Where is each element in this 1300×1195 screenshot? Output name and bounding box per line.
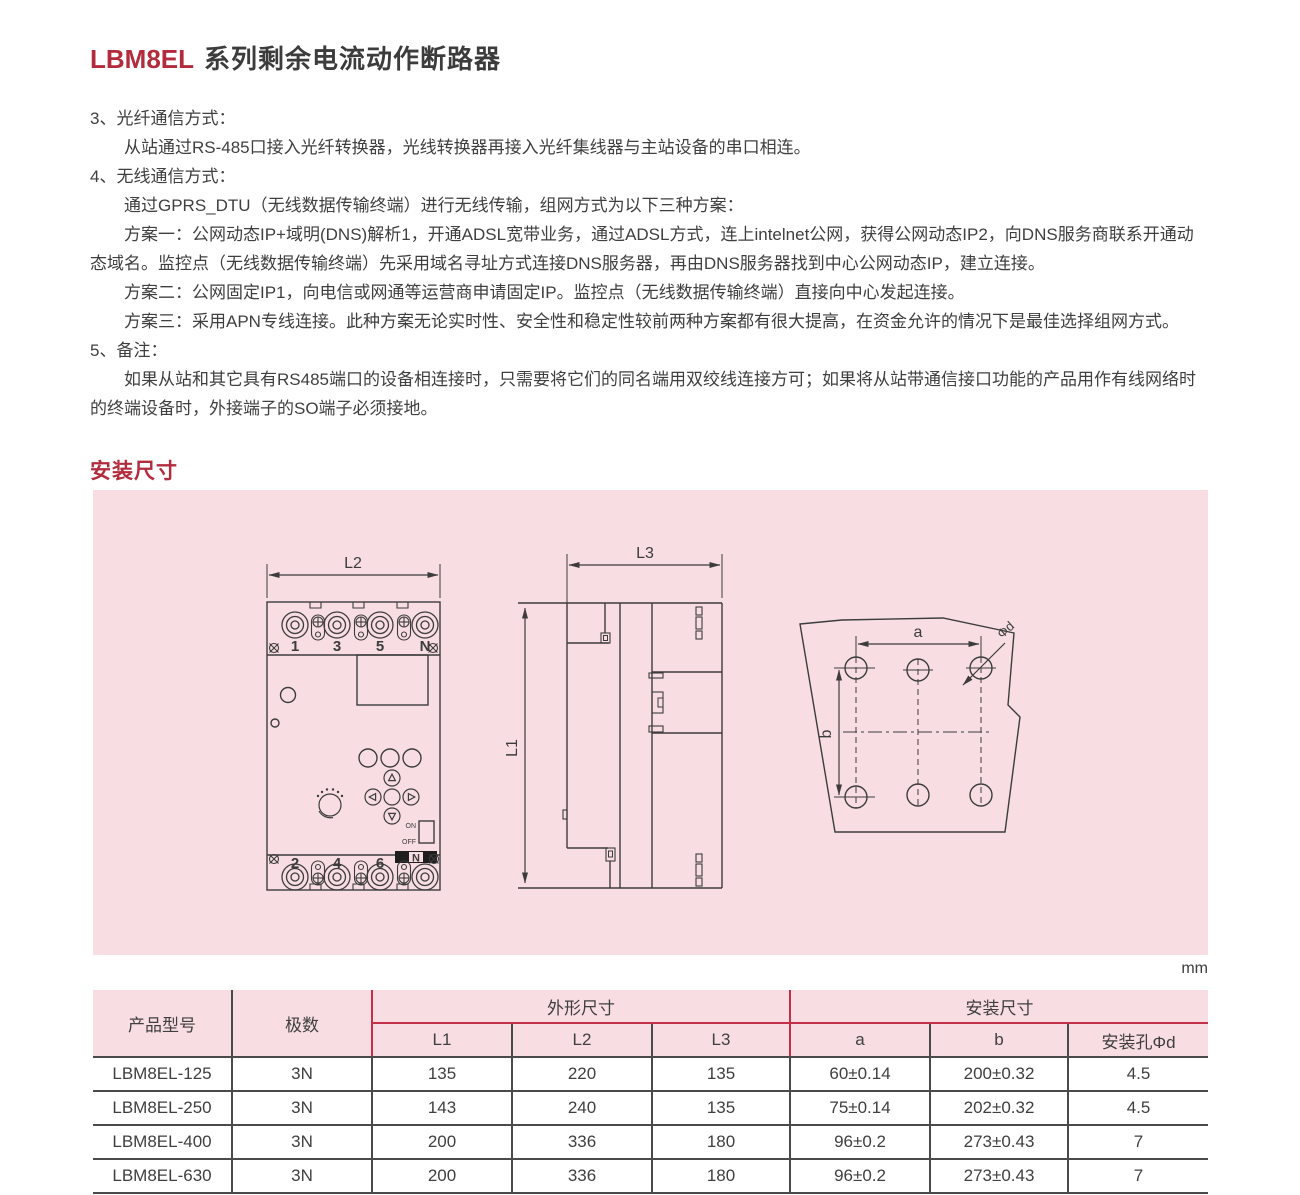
cell-model: LBM8EL-125 — [93, 1057, 232, 1091]
cell-poles: 3N — [232, 1057, 372, 1091]
side-view-height-label: L1 — [504, 739, 521, 757]
note-line-2: 从站通过RS-485口接入光纤转换器，光线转换器再接入光纤集线器与主站设备的串口… — [90, 133, 1208, 162]
top-terminals — [282, 612, 438, 638]
mounting-hole-drawing: a b Φd — [800, 618, 1020, 832]
cell-poles: 3N — [232, 1125, 372, 1159]
rotary-selector-knob — [317, 788, 343, 817]
cell-l1: 200 — [372, 1125, 512, 1159]
note-line-4: 通过GPRS_DTU（无线数据传输终端）进行无线传输，组网方式为以下三种方案： — [90, 191, 1208, 220]
column-header-product-model: 产品型号 — [93, 990, 232, 1057]
navigation-buttons — [365, 770, 419, 824]
dimensions-table: 产品型号 极数 外形尺寸 安装尺寸 L1 L2 L3 a b 安装孔Φd LBM… — [93, 990, 1208, 1194]
cell-a: 60±0.14 — [790, 1057, 930, 1091]
cell-a: 96±0.2 — [790, 1125, 930, 1159]
communication-notes: 3、光纤通信方式： 从站通过RS-485口接入光纤转换器，光线转换器再接入光纤集… — [90, 104, 1208, 423]
cell-l2: 220 — [512, 1057, 652, 1091]
front-view-drawing: L2 — [267, 555, 440, 890]
side-view-drawing: L3 L1 — [504, 545, 722, 888]
cell-a: 96±0.2 — [790, 1159, 930, 1193]
section-heading: 安装尺寸 — [90, 455, 178, 485]
cell-d: 4.5 — [1068, 1091, 1208, 1125]
catalog-page: LBM8EL系列剩余电流动作断路器 3、光纤通信方式： 从站通过RS-485口接… — [0, 0, 1300, 1195]
note-line-7: 方案三：采用APN专线连接。此种方案无论实时性、安全性和稳定性较前两种方案都有很… — [90, 307, 1208, 336]
cell-l1: 135 — [372, 1057, 512, 1091]
cell-l1: 143 — [372, 1091, 512, 1125]
note-line-8: 5、备注： — [90, 336, 1208, 365]
column-header-b: b — [930, 1023, 1068, 1057]
table-row: LBM8EL-250 3N 143 240 135 75±0.14 202±0.… — [93, 1091, 1208, 1125]
terminal-label-3: 3 — [333, 638, 341, 655]
cell-l3: 180 — [652, 1159, 790, 1193]
page-title-text: 系列剩余电流动作断路器 — [204, 44, 501, 74]
cell-b: 273±0.43 — [930, 1125, 1068, 1159]
cell-poles: 3N — [232, 1091, 372, 1125]
terminal-label-n-top: N — [420, 638, 431, 655]
cell-l3: 135 — [652, 1091, 790, 1125]
hole-dim-a-label: a — [914, 624, 923, 641]
installation-diagram: L2 — [93, 490, 1208, 955]
column-header-l2: L2 — [512, 1023, 652, 1057]
installation-diagram-panel: L2 — [93, 490, 1208, 955]
switch-off-label: OFF — [402, 839, 416, 846]
top-terminal-screws — [312, 615, 411, 640]
cell-model: LBM8EL-630 — [93, 1159, 232, 1193]
cell-l1: 200 — [372, 1159, 512, 1193]
neutral-marker-label: N — [412, 853, 420, 865]
column-header-l1: L1 — [372, 1023, 512, 1057]
unit-label: mm — [93, 960, 1208, 978]
cell-l3: 180 — [652, 1125, 790, 1159]
bottom-terminal-screws — [312, 861, 411, 885]
cell-model: LBM8EL-250 — [93, 1091, 232, 1125]
din-rail-clips — [696, 607, 702, 886]
side-view-depth-label: L3 — [636, 545, 654, 562]
cell-b: 200±0.32 — [930, 1057, 1068, 1091]
page-title: LBM8EL系列剩余电流动作断路器 — [90, 39, 501, 76]
bottom-terminals — [282, 864, 438, 890]
cell-poles: 3N — [232, 1159, 372, 1193]
table-row: LBM8EL-630 3N 200 336 180 96±0.2 273±0.4… — [93, 1159, 1208, 1193]
display-window — [357, 655, 428, 705]
indicator-leds — [359, 749, 421, 767]
column-header-l3: L3 — [652, 1023, 790, 1057]
column-header-a: a — [790, 1023, 930, 1057]
cell-model: LBM8EL-400 — [93, 1125, 232, 1159]
note-line-5: 方案一：公网动态IP+域明(DNS)解析1，开通ADSL宽带业务，通过ADSL方… — [90, 220, 1208, 278]
cell-d: 7 — [1068, 1159, 1208, 1193]
product-series-code: LBM8EL — [90, 44, 194, 74]
cell-l3: 135 — [652, 1057, 790, 1091]
terminal-label-1: 1 — [291, 638, 299, 655]
switch-on-label: ON — [406, 823, 417, 830]
terminal-label-5: 5 — [376, 638, 384, 655]
cell-l2: 336 — [512, 1125, 652, 1159]
cell-l2: 240 — [512, 1091, 652, 1125]
cell-d: 7 — [1068, 1125, 1208, 1159]
column-header-poles: 极数 — [232, 990, 372, 1057]
cell-l2: 336 — [512, 1159, 652, 1193]
note-line-9: 如果从站和其它具有RS485端口的设备相连接时，只需要将它们的同名端用双绞线连接… — [90, 365, 1208, 423]
note-line-3: 4、无线通信方式： — [90, 162, 1208, 191]
cell-d: 4.5 — [1068, 1057, 1208, 1091]
front-view-width-label: L2 — [344, 555, 362, 572]
cell-a: 75±0.14 — [790, 1091, 930, 1125]
column-header-hole-diameter: 安装孔Φd — [1068, 1023, 1208, 1057]
hole-dim-b-label: b — [818, 729, 835, 738]
note-line-1: 3、光纤通信方式： — [90, 104, 1208, 133]
cell-b: 202±0.32 — [930, 1091, 1068, 1125]
column-group-outline-dimensions: 外形尺寸 — [372, 990, 790, 1023]
table-row: LBM8EL-125 3N 135 220 135 60±0.14 200±0.… — [93, 1057, 1208, 1091]
column-group-install-dimensions: 安装尺寸 — [790, 990, 1208, 1023]
power-switch — [419, 821, 434, 843]
cell-b: 273±0.43 — [930, 1159, 1068, 1193]
table-row: LBM8EL-400 3N 200 336 180 96±0.2 273±0.4… — [93, 1125, 1208, 1159]
note-line-6: 方案二：公网固定IP1，向电信或网通等运营商申请固定IP。监控点（无线数据传输终… — [90, 278, 1208, 307]
